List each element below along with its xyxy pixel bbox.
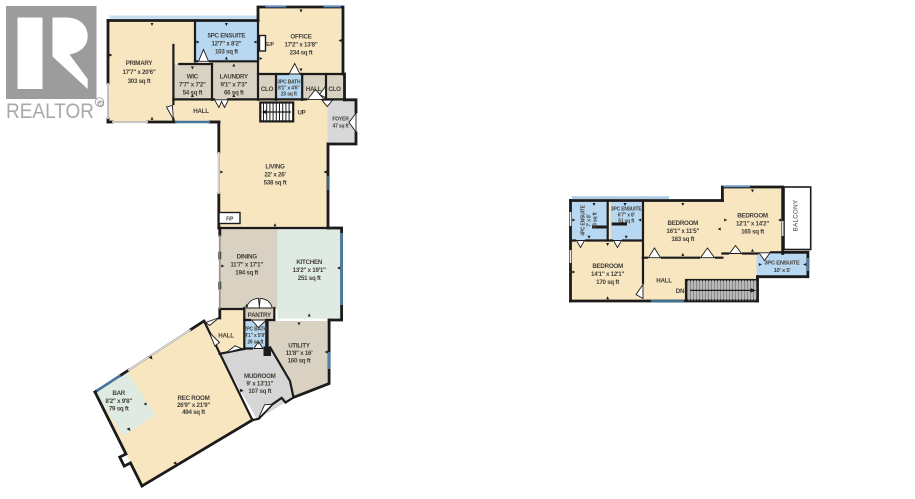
svg-text:303 sq ft: 303 sq ft (128, 78, 151, 85)
svg-text:11'7" x 17'1": 11'7" x 17'1" (230, 262, 263, 269)
svg-text:12'7" x 8'2": 12'7" x 8'2" (211, 41, 241, 48)
svg-text:E/P: E/P (266, 42, 274, 48)
svg-text:HALL: HALL (218, 333, 234, 340)
svg-text:DINING: DINING (237, 254, 258, 261)
svg-text:165 sq ft: 165 sq ft (741, 229, 764, 236)
svg-text:54 sq ft: 54 sq ft (183, 90, 203, 97)
svg-text:17'2" x 13'8": 17'2" x 13'8" (284, 42, 317, 49)
svg-text:BEDROOM: BEDROOM (592, 263, 623, 270)
svg-text:BEDROOM: BEDROOM (668, 220, 699, 227)
svg-text:12'1" x 14'2": 12'1" x 14'2" (736, 221, 769, 228)
svg-text:9'1" x 7'3": 9'1" x 7'3" (220, 82, 247, 89)
svg-text:251 sq ft: 251 sq ft (298, 275, 321, 282)
svg-text:160 sq ft: 160 sq ft (288, 358, 311, 365)
svg-text:7'7" x 7'2": 7'7" x 7'2" (179, 82, 206, 89)
svg-text:16'1" x 11'5": 16'1" x 11'5" (666, 228, 699, 235)
svg-text:5PC ENSUITE: 5PC ENSUITE (207, 33, 245, 40)
svg-text:LAUNDRY: LAUNDRY (220, 74, 249, 81)
svg-text:CLO: CLO (261, 86, 274, 93)
svg-text:CLO: CLO (328, 86, 341, 93)
svg-text:538 sq ft: 538 sq ft (264, 180, 287, 187)
svg-text:66 sq ft: 66 sq ft (224, 90, 244, 97)
svg-text:10' x 5': 10' x 5' (774, 268, 792, 274)
svg-text:FOYER: FOYER (332, 117, 349, 123)
svg-text:BEDROOM: BEDROOM (737, 213, 768, 220)
svg-text:WIC: WIC (187, 74, 199, 81)
svg-text:MUDROOM: MUDROOM (244, 373, 276, 380)
svg-text:234 sq ft: 234 sq ft (290, 50, 313, 57)
svg-text:13'2" x 19'1": 13'2" x 19'1" (293, 267, 326, 274)
svg-text:14'1" x 12'1": 14'1" x 12'1" (591, 271, 624, 278)
svg-text:F/P: F/P (226, 217, 234, 223)
svg-text:51 sq ft: 51 sq ft (618, 219, 634, 225)
svg-text:17'7" x 20'6": 17'7" x 20'6" (122, 69, 155, 76)
svg-text:170 sq ft: 170 sq ft (596, 279, 619, 286)
svg-text:LIVING: LIVING (265, 164, 285, 171)
svg-text:UTILITY: UTILITY (288, 343, 311, 350)
svg-text:53 sq ft: 53 sq ft (593, 212, 599, 228)
svg-text:494 sq ft: 494 sq ft (182, 409, 205, 416)
svg-text:REALTOR: REALTOR (6, 99, 94, 123)
svg-text:OFFICE: OFFICE (290, 34, 311, 41)
svg-text:2PC BATH: 2PC BATH (244, 327, 268, 333)
svg-text:PRIMARY: PRIMARY (126, 60, 154, 67)
svg-text:REC ROOM: REC ROOM (177, 395, 209, 402)
svg-text:UP: UP (297, 110, 305, 117)
svg-text:107 sq ft: 107 sq ft (248, 388, 271, 395)
svg-text:26'9" x 21'9": 26'9" x 21'9" (177, 402, 210, 409)
svg-text:79 sq ft: 79 sq ft (109, 406, 129, 413)
svg-text:183 sq ft: 183 sq ft (671, 236, 694, 243)
svg-text:3PC ENSUITE: 3PC ENSUITE (764, 261, 800, 267)
svg-text:23 sq ft: 23 sq ft (281, 92, 297, 98)
svg-text:47 sq ft: 47 sq ft (333, 124, 349, 130)
svg-text:26 sq ft: 26 sq ft (247, 340, 263, 346)
svg-text:BALCONY: BALCONY (793, 200, 800, 232)
svg-text:BAR: BAR (112, 390, 125, 397)
svg-text:DN: DN (676, 288, 685, 295)
svg-text:8'2" x 9'8": 8'2" x 9'8" (105, 398, 132, 405)
svg-text:PANTRY: PANTRY (248, 312, 272, 319)
svg-text:KITCHEN: KITCHEN (296, 259, 323, 266)
svg-text:4'1" x 5'9": 4'1" x 5'9" (244, 333, 266, 339)
svg-text:HALL: HALL (656, 278, 672, 285)
svg-text:HALL: HALL (306, 86, 322, 93)
svg-text:103 sq ft: 103 sq ft (215, 49, 238, 56)
svg-text:9' x 13'11": 9' x 13'11" (246, 381, 273, 388)
svg-text:22' x 26': 22' x 26' (264, 172, 286, 179)
svg-text:194 sq ft: 194 sq ft (235, 270, 258, 277)
svg-text:11'8" x 16': 11'8" x 16' (286, 350, 314, 357)
svg-text:HALL: HALL (193, 108, 209, 115)
